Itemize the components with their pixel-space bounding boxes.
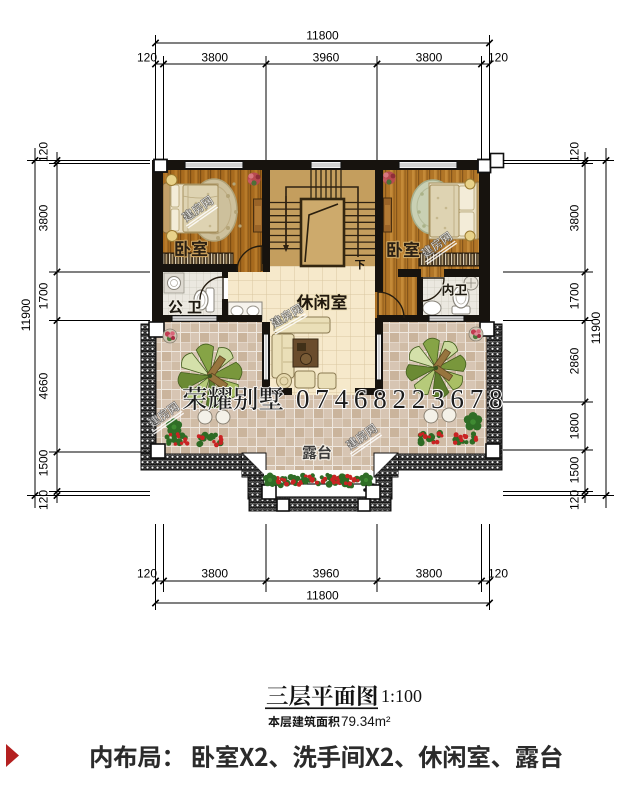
- svg-text:120: 120: [37, 490, 51, 510]
- svg-text:3800: 3800: [416, 51, 443, 65]
- svg-text:2860: 2860: [568, 347, 582, 374]
- svg-text:1700: 1700: [568, 282, 582, 309]
- svg-text:3960: 3960: [313, 51, 340, 65]
- svg-text:3800: 3800: [201, 567, 228, 581]
- svg-text:1700: 1700: [37, 282, 51, 309]
- svg-text:1500: 1500: [37, 449, 51, 476]
- svg-text:120: 120: [137, 51, 157, 65]
- svg-text:120: 120: [488, 567, 508, 581]
- svg-text:3800: 3800: [201, 51, 228, 65]
- svg-text:1800: 1800: [568, 412, 582, 439]
- svg-text:4660: 4660: [37, 372, 51, 399]
- svg-text:79.34m²: 79.34m²: [341, 714, 391, 729]
- svg-text:11900: 11900: [19, 298, 33, 331]
- svg-text:120: 120: [37, 142, 51, 162]
- svg-text:11800: 11800: [306, 589, 339, 603]
- svg-text:11800: 11800: [306, 29, 339, 43]
- svg-text:07468223678: 07468223678: [296, 384, 508, 414]
- svg-text:120: 120: [568, 142, 582, 162]
- svg-text:120: 120: [137, 567, 157, 581]
- svg-text:1:100: 1:100: [381, 686, 422, 706]
- svg-text:120: 120: [568, 490, 582, 510]
- svg-text:3800: 3800: [568, 204, 582, 231]
- svg-text:3960: 3960: [313, 567, 340, 581]
- svg-text:1500: 1500: [568, 456, 582, 483]
- svg-text:3800: 3800: [416, 567, 443, 581]
- svg-text:11900: 11900: [589, 311, 603, 344]
- svg-text:120: 120: [488, 51, 508, 65]
- svg-text:3800: 3800: [37, 204, 51, 231]
